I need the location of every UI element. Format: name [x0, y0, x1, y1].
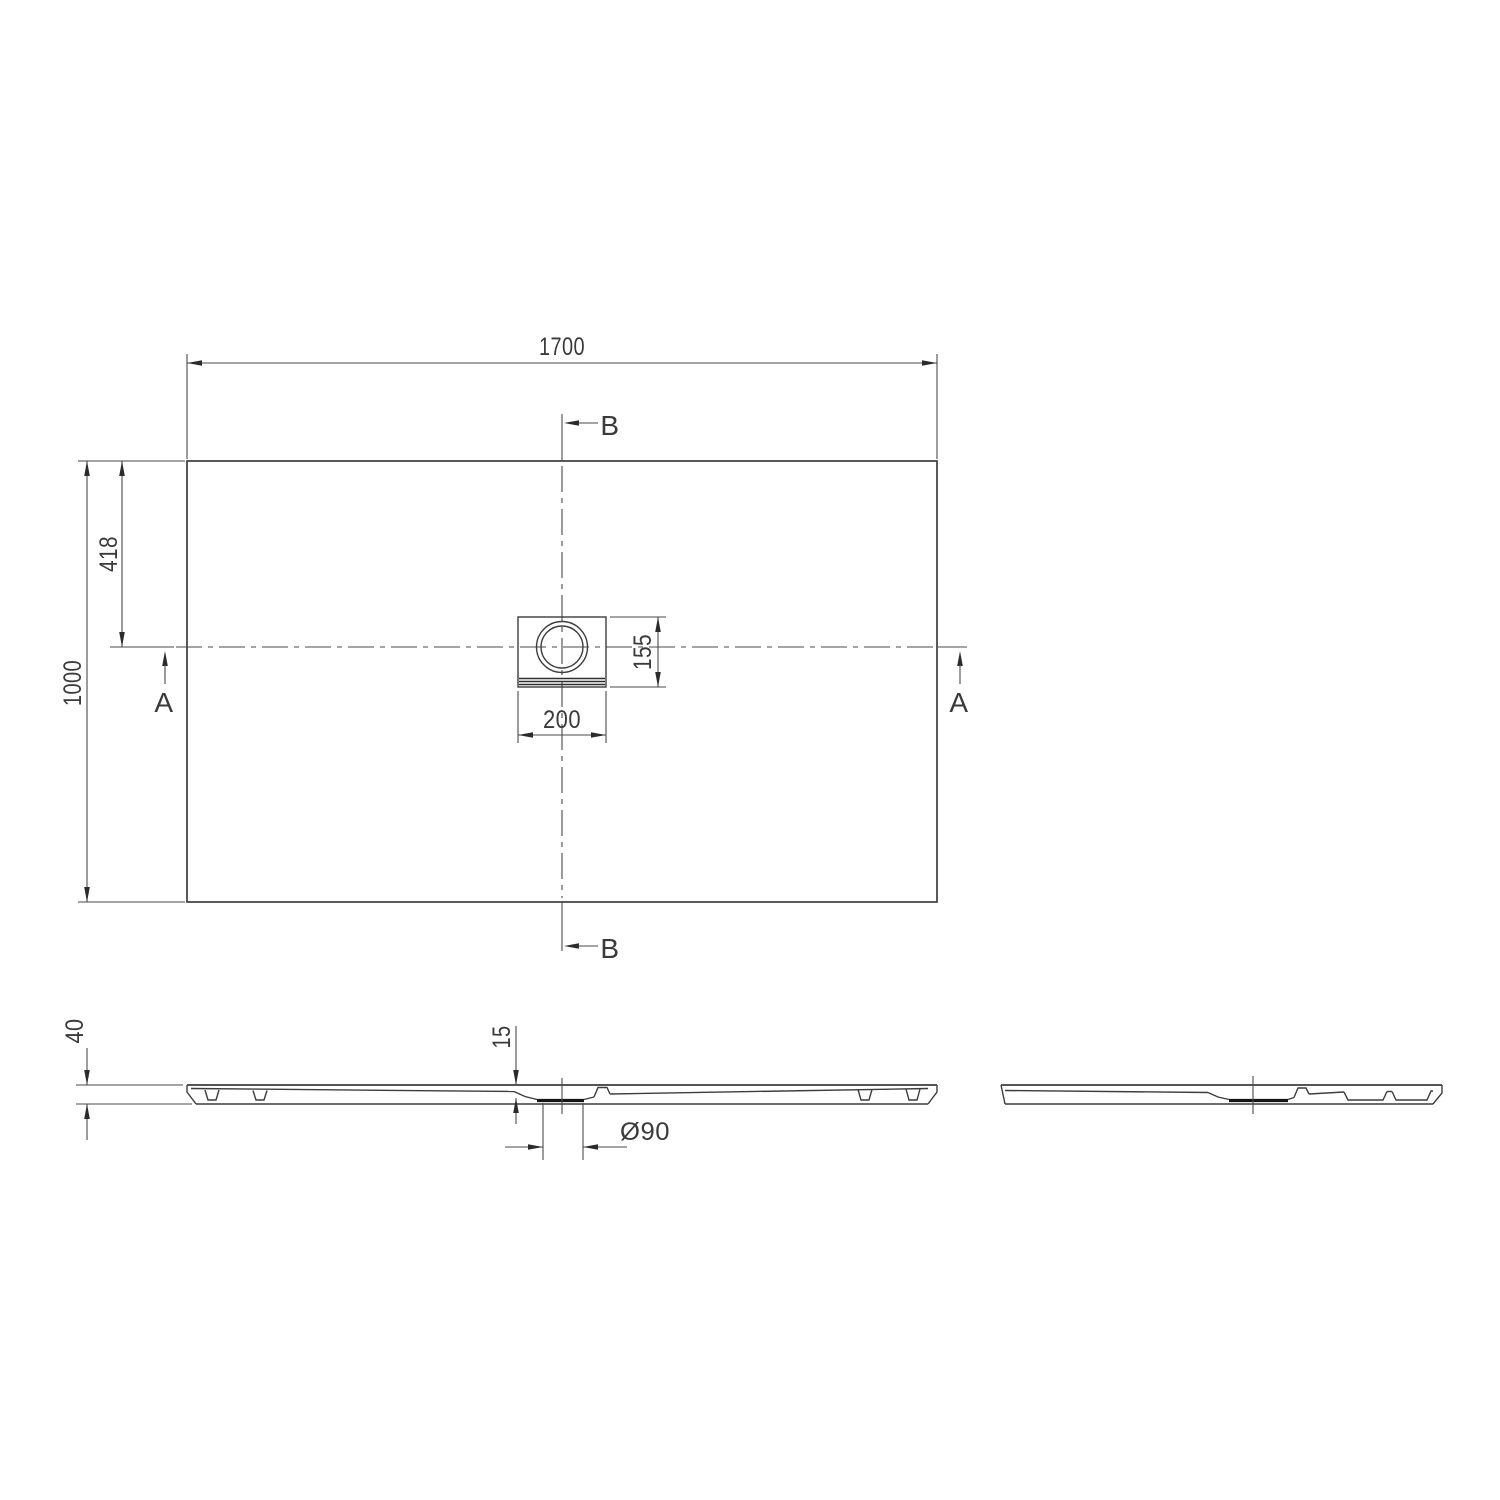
support-foot	[906, 1089, 920, 1100]
arrowhead-down	[84, 887, 90, 902]
dimension-drain-recess-depth: 15	[488, 1026, 519, 1125]
section-marker-a-left: A	[154, 651, 173, 718]
arrowhead-left	[518, 732, 533, 738]
arrowhead-up	[957, 651, 963, 666]
support-foot	[253, 1091, 267, 1101]
arrowhead-up	[513, 1098, 519, 1113]
arrowhead-up	[84, 1104, 90, 1119]
dimension-drain-offset: 418	[95, 461, 172, 647]
dimension-tray-height: 40	[61, 1019, 192, 1141]
drain-lip-profile	[594, 1088, 610, 1098]
arrowhead-right	[591, 732, 606, 738]
arrowhead-left	[564, 943, 579, 949]
section-label-b: B	[600, 410, 619, 441]
support-foot-pad	[1392, 1091, 1433, 1100]
tray-inner-surface-left	[191, 1089, 514, 1092]
tray-inner-surface-right	[1309, 1092, 1344, 1094]
section-marker-b-bottom: B	[562, 902, 620, 964]
support-foot	[858, 1090, 872, 1101]
arrowhead-up	[84, 461, 90, 476]
tray-right-edge	[1433, 1085, 1442, 1104]
technical-drawing: 1700 1000 418 155 200	[0, 0, 1500, 1500]
tray-inner-surface-right	[610, 1089, 928, 1095]
arrowhead-left	[564, 420, 579, 426]
dimension-text-dia90: Ø90	[620, 1118, 670, 1146]
arrowhead-left	[187, 360, 202, 366]
drain-recess-left-slope	[514, 1092, 537, 1100]
drain-recess-right-slope	[584, 1097, 594, 1100]
arrowhead-left	[583, 1144, 598, 1150]
arrowhead-down	[513, 1070, 519, 1085]
support-foot	[205, 1090, 219, 1100]
section-label-a: A	[949, 687, 968, 718]
arrowhead-down	[655, 672, 661, 687]
dimension-text-1700: 1700	[539, 333, 585, 361]
dimension-text-418: 418	[95, 536, 123, 572]
arrowhead-down	[84, 1070, 90, 1085]
section-label-b: B	[600, 933, 619, 964]
dimension-drain-cutout-depth: 155	[610, 617, 666, 687]
drain-lip-profile	[1294, 1088, 1309, 1098]
arrowhead-right	[922, 360, 937, 366]
section-label-a: A	[154, 687, 173, 718]
arrowhead-up	[119, 461, 125, 476]
dimension-text-15: 15	[488, 1026, 516, 1049]
drain-recess-left-slope	[1208, 1093, 1229, 1100]
dimension-drain-diameter: Ø90	[505, 1103, 670, 1160]
dimension-text-1000: 1000	[59, 660, 87, 706]
tray-inner-surface-left	[1005, 1091, 1208, 1093]
section-view-long	[187, 1078, 937, 1114]
tray-left-edge	[1001, 1085, 1005, 1104]
dimension-text-155: 155	[629, 634, 657, 670]
arrowhead-up	[655, 617, 661, 632]
arrowhead-right	[528, 1144, 543, 1150]
section-view-cross	[1001, 1076, 1442, 1114]
dimension-text-40: 40	[61, 1019, 89, 1044]
section-marker-b-top: B	[562, 410, 620, 461]
tray-right-edge	[928, 1085, 937, 1104]
arrowhead-down	[119, 632, 125, 647]
plan-view	[155, 461, 967, 902]
arrowhead-up	[162, 651, 168, 666]
drawing-sheet: 1700 1000 418 155 200	[0, 0, 1500, 1500]
support-foot-pad	[1344, 1092, 1387, 1101]
section-marker-a-right: A	[949, 651, 968, 718]
drain-recess-right-slope	[1288, 1098, 1294, 1100]
dimension-text-200: 200	[543, 706, 581, 734]
